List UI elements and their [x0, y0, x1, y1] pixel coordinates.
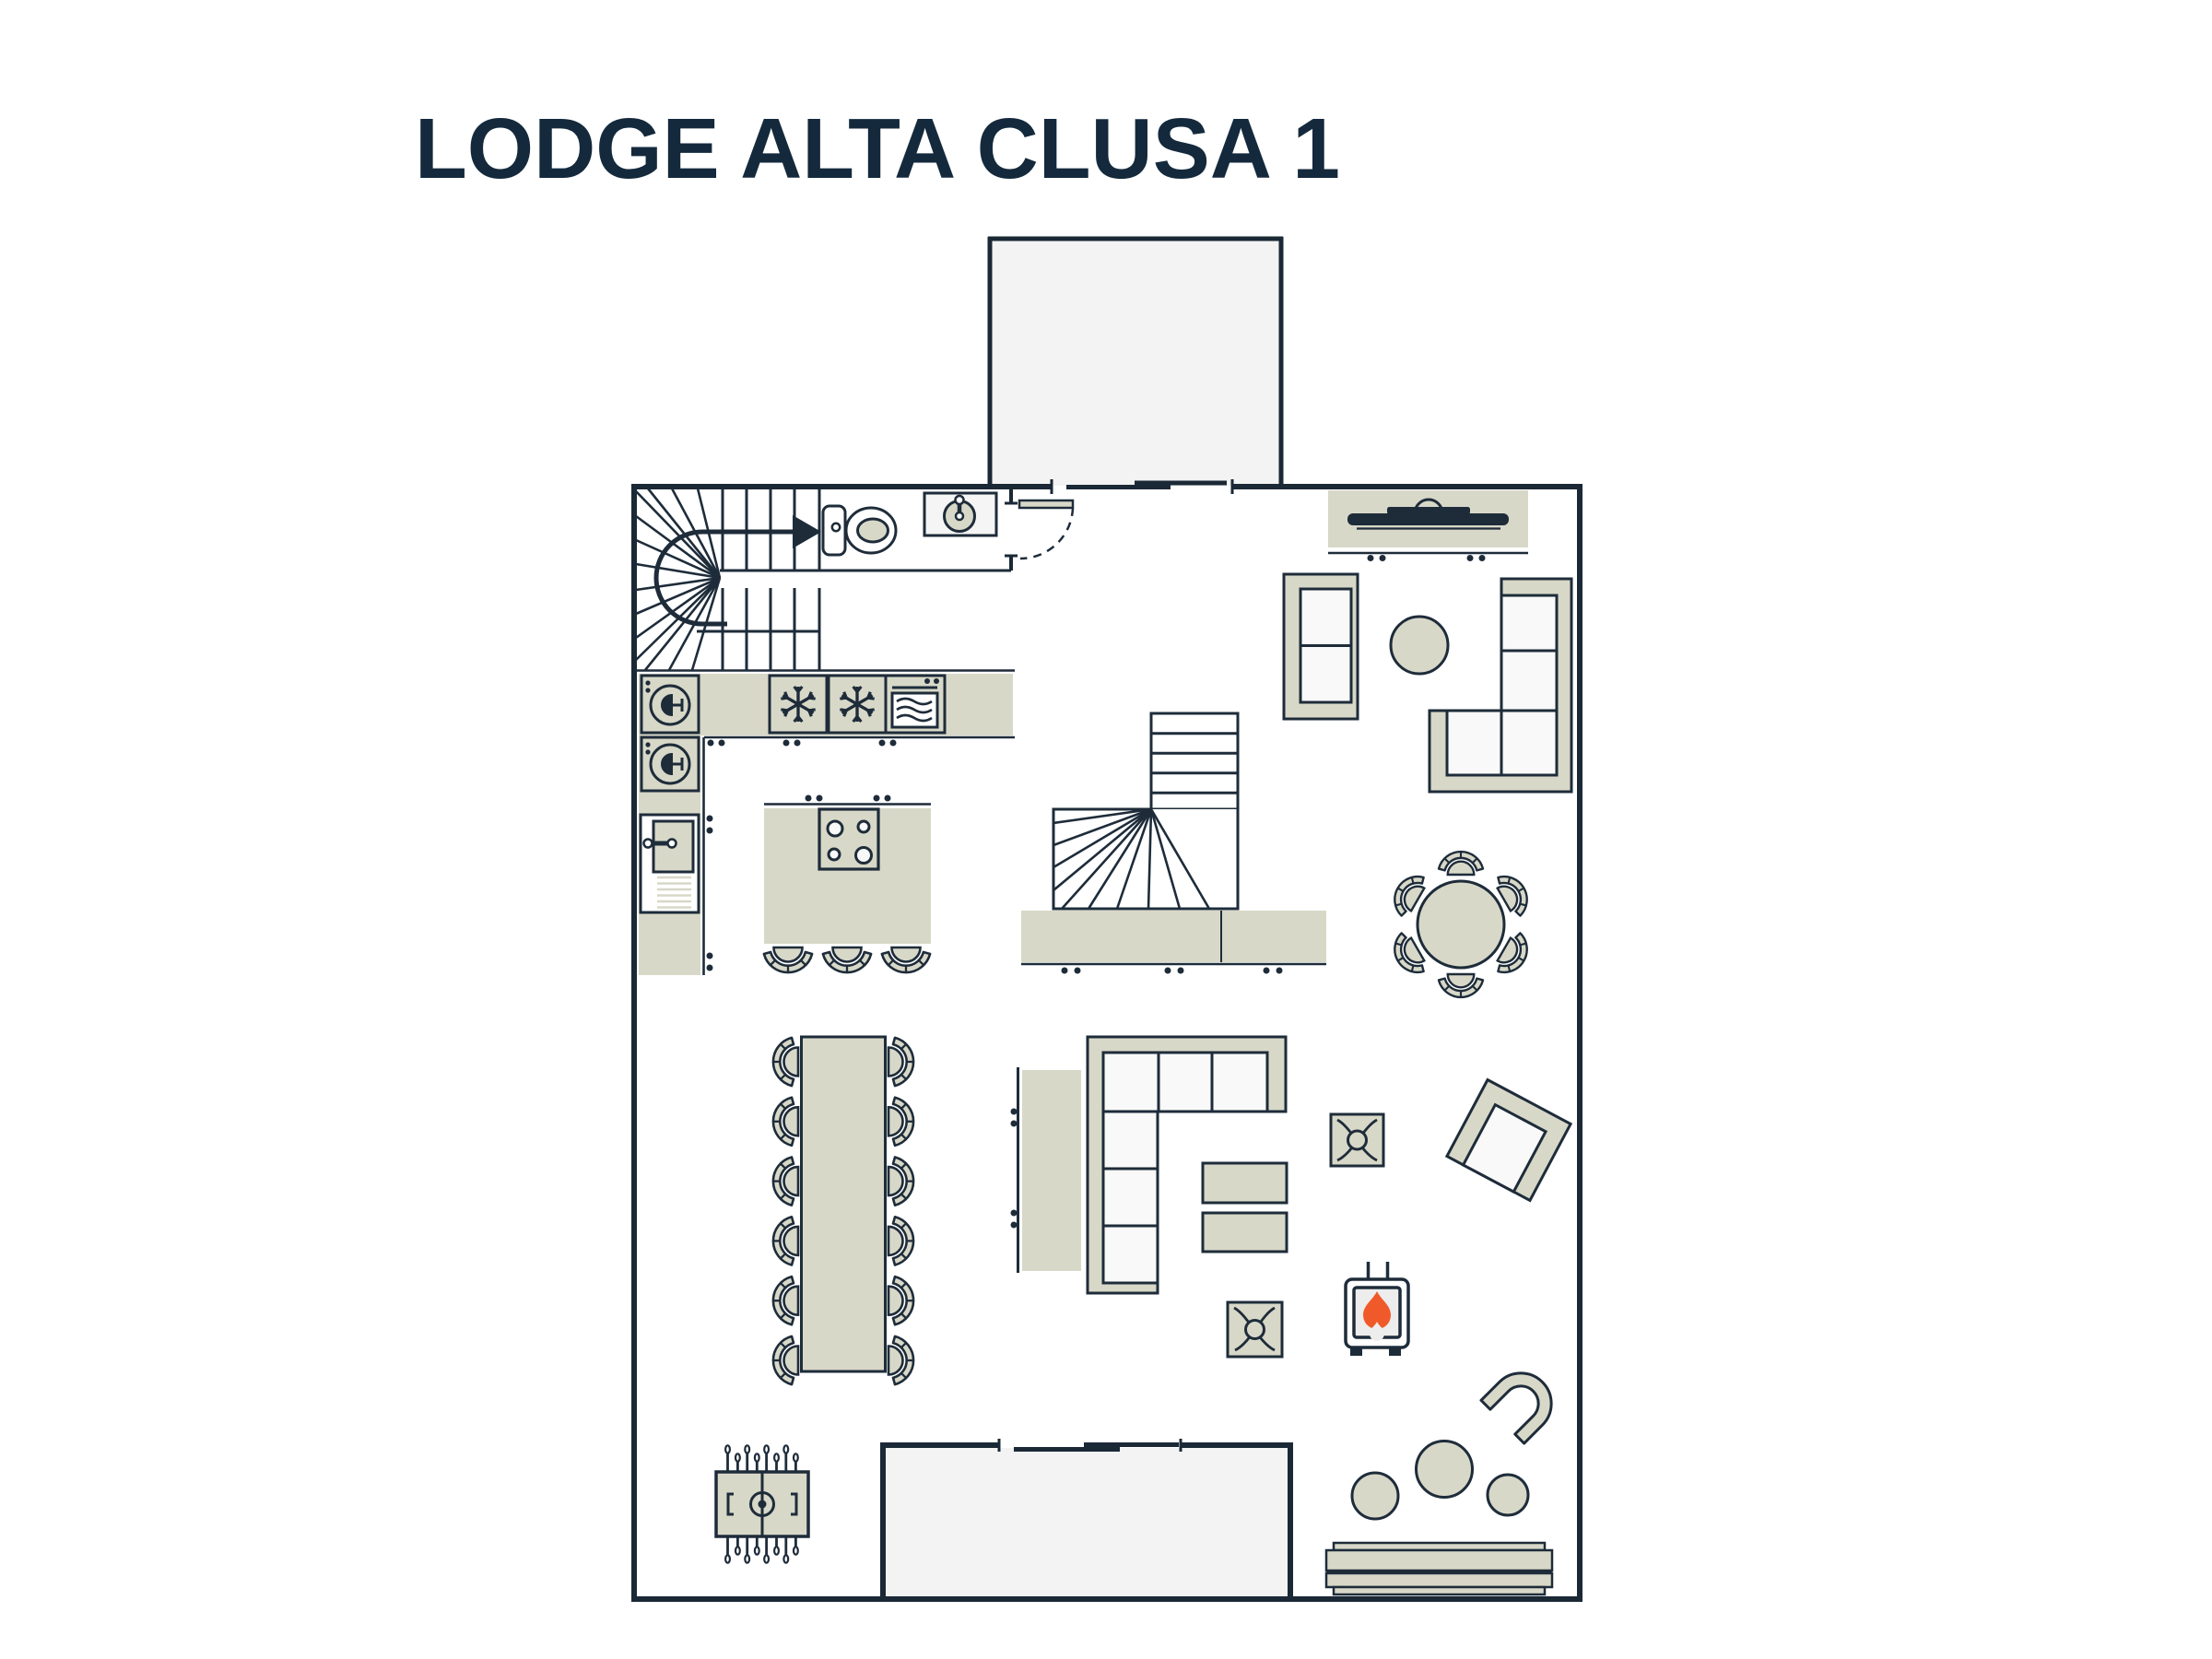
svg-text:LODGE ALTA CLUSA 1: LODGE ALTA CLUSA 1 [415, 100, 1340, 196]
